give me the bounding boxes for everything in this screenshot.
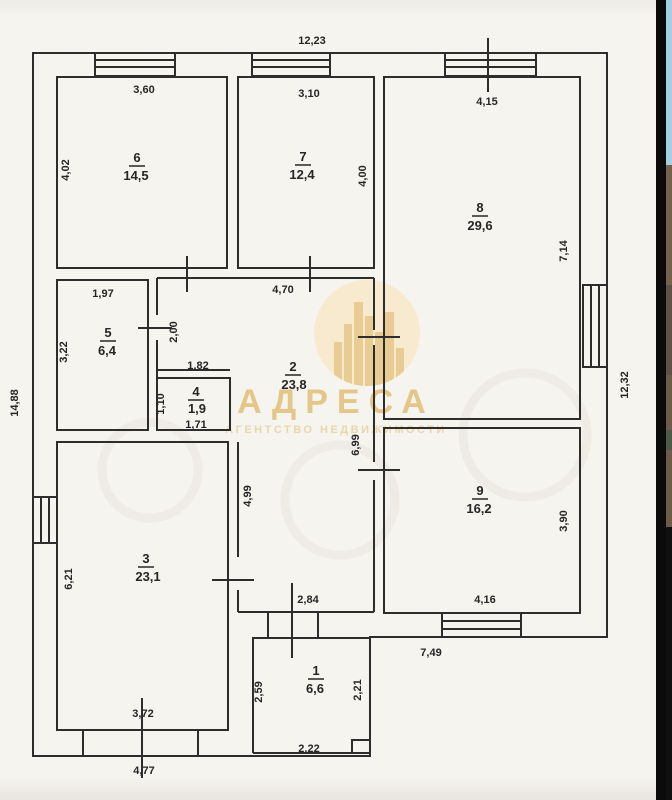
room-8-area: 29,6 (467, 218, 492, 233)
dim-room1-left: 2,59 (253, 681, 265, 702)
dim-room2-right: 6,99 (350, 434, 362, 455)
next-photo-dark-sliver (666, 527, 672, 800)
room-5-number: 5 (104, 325, 111, 340)
room-3-area: 23,1 (135, 569, 160, 584)
dim-room9-bottom: 4,16 (474, 594, 495, 606)
room-9-area: 16,2 (466, 501, 491, 516)
dim-room4-left: 1,10 (155, 393, 167, 414)
next-photo-sliver-1 (666, 165, 672, 285)
room-4-number: 4 (192, 384, 200, 399)
dim-room2-left: 4,99 (242, 485, 254, 506)
room-4-area: 1,9 (188, 401, 206, 416)
watermark-brand-text: АДРЕСА (237, 383, 435, 421)
dim-exterior-bottom-left: 4,77 (133, 765, 154, 777)
room-3-number: 3 (142, 551, 149, 566)
next-photo-sliver-3 (666, 375, 672, 527)
room-6-number: 6 (133, 150, 140, 165)
dim-exterior-left: 14,88 (9, 389, 21, 417)
room-8-number: 8 (476, 200, 483, 215)
dim-room1-right: 2,21 (352, 679, 364, 700)
room-7-area: 12,4 (289, 167, 315, 182)
next-photo-green-fleck (666, 430, 672, 450)
gallery-divider (656, 0, 666, 800)
dim-room2-top: 4,70 (272, 284, 293, 296)
dim-exterior-top: 12,23 (298, 35, 326, 47)
room-6-area: 14,5 (123, 168, 148, 183)
dim-room5-left: 3,22 (58, 341, 70, 362)
dim-room3-bottom: 3,72 (132, 708, 153, 720)
dim-room4-top: 1,82 (187, 360, 208, 372)
dim-exterior-bottom-right: 7,49 (420, 647, 441, 659)
room-5-area: 6,4 (98, 343, 117, 358)
dim-room7-top: 3,10 (298, 88, 319, 100)
room-7-number: 7 (299, 149, 306, 164)
next-photo-sky-sliver (666, 0, 672, 165)
room-1-area: 6,6 (306, 681, 324, 696)
dim-room7-right: 4,00 (357, 165, 369, 186)
room-2-area: 23,8 (281, 377, 306, 392)
dim-room8-top: 4,15 (476, 96, 497, 108)
dim-room6-left: 4,02 (60, 159, 72, 180)
dim-room1-bottom: 2,22 (298, 743, 319, 755)
dim-room5-top: 1,97 (92, 288, 113, 300)
room-1-number: 1 (312, 663, 319, 678)
watermark-tagline-text: АГЕНТСТВО НЕДВИЖИМОСТИ (225, 424, 447, 436)
dim-room2-upper-left: 2,00 (168, 321, 180, 342)
next-photo-sliver-2 (666, 285, 672, 375)
floor-plan-canvas: АДРЕСА АГЕНТСТВО НЕДВИЖИМОСТИ (0, 0, 672, 800)
dim-exterior-right: 12,32 (619, 371, 631, 399)
dim-room4-bottom: 1,71 (185, 419, 206, 431)
photo-strip-edge (656, 0, 672, 800)
dim-room6-top: 3,60 (133, 84, 154, 96)
room-9-number: 9 (476, 483, 483, 498)
dim-room8-right: 7,14 (558, 239, 570, 261)
dim-room3-left: 6,21 (63, 568, 75, 589)
dim-room9-right: 3,90 (558, 510, 570, 531)
room-2-number: 2 (289, 359, 296, 374)
dim-room2-bottom: 2,84 (297, 594, 319, 606)
floor-plan-page: АДРЕСА АГЕНТСТВО НЕДВИЖИМОСТИ (0, 0, 672, 800)
